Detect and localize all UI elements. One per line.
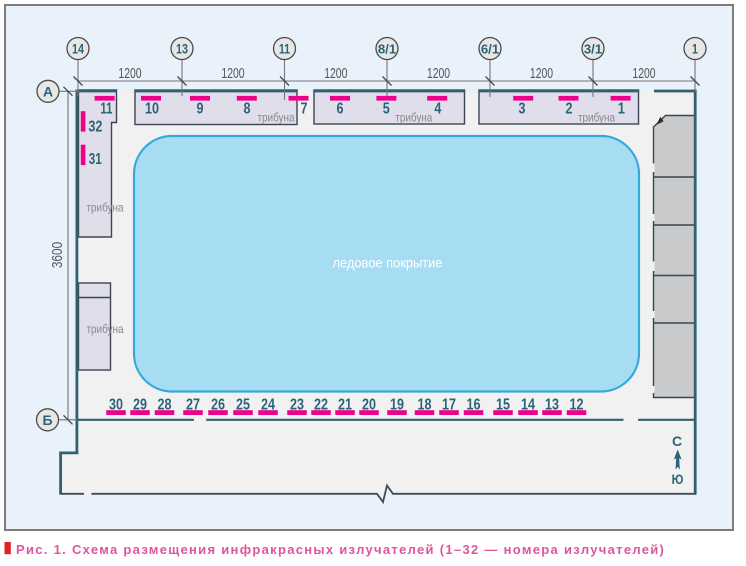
svg-text:18: 18 (418, 397, 432, 414)
svg-text:2: 2 (566, 100, 573, 117)
svg-text:1: 1 (692, 41, 698, 57)
svg-text:4: 4 (434, 100, 441, 117)
svg-text:25: 25 (236, 397, 250, 414)
svg-text:14: 14 (521, 397, 535, 414)
svg-text:16: 16 (467, 397, 481, 414)
svg-text:1200: 1200 (221, 65, 244, 82)
svg-text:1200: 1200 (632, 65, 655, 82)
svg-text:11: 11 (100, 100, 112, 117)
svg-text:ледовое покрытие: ледовое покрытие (333, 256, 443, 271)
svg-text:7: 7 (301, 100, 308, 117)
svg-text:15: 15 (496, 397, 510, 414)
svg-text:32: 32 (88, 118, 102, 135)
svg-text:3/1: 3/1 (584, 41, 602, 56)
svg-text:17: 17 (442, 397, 456, 414)
svg-text:11: 11 (279, 41, 290, 57)
svg-text:9: 9 (197, 100, 204, 117)
svg-text:30: 30 (109, 397, 123, 414)
svg-text:28: 28 (158, 397, 172, 414)
svg-text:А: А (43, 83, 53, 99)
svg-text:23: 23 (290, 397, 304, 414)
svg-text:13: 13 (545, 397, 559, 414)
svg-text:1200: 1200 (427, 65, 450, 82)
svg-text:10: 10 (145, 100, 159, 117)
svg-text:14: 14 (72, 41, 84, 57)
svg-text:27: 27 (186, 397, 200, 414)
svg-text:С: С (672, 433, 682, 449)
svg-text:13: 13 (176, 41, 188, 57)
svg-text:1200: 1200 (324, 65, 347, 82)
svg-text:3: 3 (519, 100, 526, 117)
svg-text:Рис. 1. Схема размещения инфра: Рис. 1. Схема размещения инфракрасных из… (16, 542, 665, 557)
svg-text:12: 12 (570, 397, 584, 414)
svg-text:трибуна: трибуна (395, 111, 432, 125)
svg-text:Ю: Ю (672, 471, 684, 487)
svg-text:1200: 1200 (530, 65, 553, 82)
svg-text:трибуна: трибуна (87, 322, 124, 336)
svg-text:22: 22 (314, 397, 328, 414)
svg-text:29: 29 (133, 397, 147, 414)
svg-text:5: 5 (383, 100, 390, 117)
svg-text:24: 24 (261, 397, 275, 414)
svg-text:трибуна: трибуна (258, 111, 295, 125)
svg-text:1200: 1200 (118, 65, 141, 82)
svg-text:26: 26 (211, 397, 225, 414)
svg-text:20: 20 (362, 397, 376, 414)
svg-text:8/1: 8/1 (378, 41, 396, 56)
svg-text:трибуна: трибуна (87, 201, 124, 215)
svg-text:21: 21 (338, 397, 352, 414)
svg-text:3600: 3600 (49, 242, 66, 268)
svg-text:19: 19 (390, 397, 404, 414)
svg-text:31: 31 (89, 151, 102, 168)
svg-text:Б: Б (42, 412, 52, 428)
svg-text:трибуна: трибуна (578, 111, 615, 125)
svg-text:6/1: 6/1 (481, 41, 499, 56)
svg-text:1: 1 (618, 100, 625, 117)
svg-text:6: 6 (337, 100, 344, 117)
svg-text:8: 8 (244, 100, 251, 117)
